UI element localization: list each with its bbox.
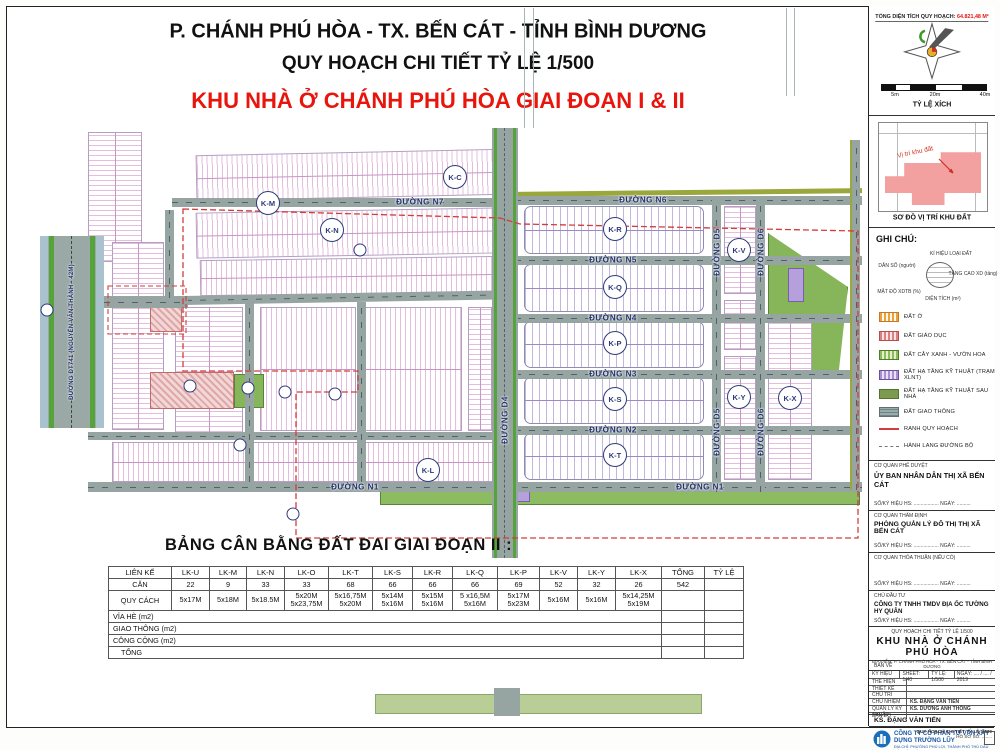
- verify-name: PHÒNG QUẢN LÝ ĐÔ THỊ THỊ XÃ BẾN CÁT: [874, 521, 995, 535]
- cell: 542: [662, 579, 705, 591]
- scale-tick: 5m: [891, 92, 899, 98]
- sign-line: SỐ/KÝ HIỆU HS: .................. NGÀY: …: [874, 501, 971, 507]
- block-label-k-s: K-S: [603, 387, 627, 411]
- credit-value: KS. ĐẶNG VĂN TIẾN: [907, 699, 959, 705]
- road-east-edge: [850, 140, 860, 490]
- legend-item: ĐẤT GIÁO DỤC: [879, 331, 947, 341]
- row-label: QUY CÁCH: [109, 591, 172, 611]
- cell: 5x17M: [172, 591, 210, 611]
- credit-row: QUẢN LÝ KỸ THUẬT KS. DƯƠNG ANH THÔNG: [869, 706, 995, 713]
- tech-infra-swatch: [879, 370, 899, 380]
- col-header: LK-M: [210, 567, 247, 579]
- street-label-n1: ĐƯỜNG N1: [331, 483, 379, 492]
- compass-section: TỔNG DIỆN TÍCH QUY HOẠCH: 64.821,48 M² 5…: [869, 6, 995, 116]
- block-dot: [242, 382, 255, 395]
- cell: [662, 634, 705, 646]
- investor-label: CHỦ ĐẦU TƯ: [874, 593, 905, 599]
- sheet-footer: QUY HOẠCH CHI TIẾT TỶ LỆ 1/500 HỒ SƠ SỐ:…: [600, 729, 992, 747]
- cell: 68: [329, 579, 373, 591]
- cell: [705, 579, 744, 591]
- lot-block: [260, 307, 356, 431]
- credit-label: KÝ HIỆU: [869, 671, 900, 678]
- road-green-stripe: [49, 236, 54, 428]
- cell: 5x16,75M 5x20M: [329, 591, 373, 611]
- investor-box: CHỦ ĐẦU TƯ CÔNG TY TNHH TMDV ĐỊA ỐC TƯỜN…: [869, 591, 995, 627]
- cell: 26: [616, 579, 662, 591]
- cell: 5x15M 5x16M: [413, 591, 453, 611]
- cell: [662, 591, 705, 611]
- engineer-name: KS. ĐẶNG VĂN TIẾN: [874, 717, 941, 724]
- traffic-swatch: [879, 407, 899, 417]
- total-area-label: TỔNG DIỆN TÍCH QUY HOẠCH:: [875, 14, 955, 20]
- plan-sheet: P. CHÁNH PHÚ HÒA - TX. BẾN CÁT - TỈNH BÌ…: [0, 0, 1000, 750]
- agree-label: CƠ QUAN THỎA THUẬN (NẾU CÓ): [874, 555, 955, 561]
- balance-table-title: BẢNG CÂN BẰNG ĐẤT ĐAI GIAI ĐOẠN II :: [165, 536, 512, 555]
- street-label-n3: ĐƯỜNG N3: [589, 370, 637, 379]
- lot-block: [196, 207, 505, 258]
- street-label-n4: ĐƯỜNG N4: [589, 314, 637, 323]
- cell: 32: [578, 579, 616, 591]
- cell: [662, 610, 705, 622]
- corridor-swatch: [879, 446, 899, 447]
- legend-item-label: RANH QUY HOẠCH: [904, 426, 958, 432]
- legend-item-label: ĐẤT GIAO THÔNG: [904, 409, 955, 415]
- footer-line2: HỒ SƠ SỐ: ........: [600, 734, 992, 739]
- table-row-congcong: CÔNG CỘNG (m2): [109, 634, 744, 646]
- credit-row: CHỦ NHIỆM KS. ĐẶNG VĂN TIẾN: [869, 699, 995, 706]
- project-type: QUY HOẠCH CHI TIẾT TỶ LỆ 1/500: [869, 629, 995, 635]
- block-label-k-v: K-V: [727, 238, 751, 262]
- legend-item-label: ĐẤT HẠ TẦNG KỸ THUẬT (TRẠM XLNT): [904, 369, 995, 381]
- block-label-k-y: K-Y: [727, 385, 751, 409]
- map-street-line: [879, 133, 987, 134]
- col-header: LK-V: [540, 567, 578, 579]
- table-header-row: LIÊN KẾ LK-U LK-M LK-N LK-O LK-T LK-S LK…: [109, 567, 744, 579]
- credit-label: THIẾT KẾ: [869, 686, 907, 692]
- site-arrow-icon: [937, 157, 959, 179]
- cell: [705, 610, 744, 622]
- total-area-value: 64.821,48 M²: [957, 14, 989, 20]
- block-dot: [234, 439, 247, 452]
- row-label: CĂN: [109, 579, 172, 591]
- col-header: LK-P: [498, 567, 540, 579]
- road-alley: [165, 210, 174, 298]
- street-label-d4: ĐƯỜNG D4: [501, 396, 510, 444]
- credit-value: TỶ LỆ: 1/500: [929, 671, 955, 678]
- col-header: TỶ LỆ: [705, 567, 744, 579]
- block-label-k-p: K-P: [603, 331, 627, 355]
- sign-line: SỐ/KÝ HIỆU HS: .................. NGÀY: …: [874, 618, 971, 624]
- legend-item-label: ĐẤT CÂY XANH - VƯỜN HOA: [904, 352, 986, 358]
- credit-row: KÝ HIỆU SHEET: 1/40 TỶ LỆ: 1/500 NGÀY: .…: [869, 671, 995, 679]
- scale-tick: 20m: [930, 92, 941, 98]
- project-name-box: QUY HOẠCH CHI TIẾT TỶ LỆ 1/500 KHU NHÀ Ở…: [869, 627, 995, 661]
- street-label-dt741: ĐƯỜNG ĐT741 (NGUYỄN VĂN THÀNH - 42M): [69, 264, 75, 400]
- sign-line: SỐ/KÝ HIỆU HS: .................. NGÀY: …: [874, 543, 971, 549]
- block-dot: [41, 304, 54, 317]
- rear-infra-swatch: [879, 389, 899, 399]
- legend-item-label: ĐẤT GIÁO DỤC: [904, 333, 947, 339]
- road-centerline: [504, 128, 505, 558]
- road-extension-line: [786, 8, 787, 96]
- legend-title: GHI CHÚ:: [876, 234, 917, 244]
- location-map-section: Vị trí khu đất SƠ ĐỒ VỊ TRÍ KHU ĐẤT: [869, 116, 995, 228]
- drawing-label: BẢN VẼ: [874, 663, 892, 669]
- block-label-k-q: K-Q: [603, 275, 627, 299]
- cell: 52: [540, 579, 578, 591]
- col-header: LK-Q: [453, 567, 498, 579]
- credit-label: CHỦ TRÌ: [869, 692, 907, 698]
- row-label: VỈA HÈ (m2): [109, 610, 662, 622]
- street-label-d6: ĐƯỜNG D6: [757, 228, 766, 276]
- title-line1: P. CHÁNH PHÚ HÒA - TX. BẾN CÁT - TỈNH BÌ…: [170, 21, 707, 44]
- street-label-n6: ĐƯỜNG N6: [619, 196, 667, 205]
- credit-value: SHEET: 1/40: [900, 671, 929, 678]
- legend-item: RANH QUY HOẠCH: [879, 426, 958, 432]
- cell: [705, 591, 744, 611]
- cell: 5x16M: [540, 591, 578, 611]
- block-label-k-m: K-M: [256, 191, 280, 215]
- cell: 22: [172, 579, 210, 591]
- legend-item: ĐẤT HẠ TẦNG KỸ THUẬT (TRẠM XLNT): [879, 369, 995, 381]
- street-label-n7: ĐƯỜNG N7: [396, 198, 444, 207]
- col-header: LK-X: [616, 567, 662, 579]
- boundary-swatch: [879, 428, 899, 430]
- legend-item: ĐẤT Ở: [879, 312, 922, 322]
- road-n6: [515, 196, 862, 205]
- balance-table: LIÊN KẾ LK-U LK-M LK-N LK-O LK-T LK-S LK…: [108, 566, 744, 659]
- site-label: Vị trí khu đất: [897, 145, 934, 159]
- drawing-label-box: BẢN VẼ: [869, 661, 995, 671]
- location-map-caption: SƠ ĐỒ VỊ TRÍ KHU ĐẤT: [893, 215, 971, 222]
- street-label-n2: ĐƯỜNG N2: [589, 426, 637, 435]
- block-dot: [279, 386, 292, 399]
- road-green-stripe: [513, 128, 516, 558]
- col-header: LIÊN KẾ: [109, 567, 172, 579]
- road-n2: [515, 426, 862, 435]
- col-header: LK-T: [329, 567, 373, 579]
- road-n4: [515, 314, 862, 323]
- sign-line: SỐ/KÝ HIỆU HS: .................. NGÀY: …: [874, 581, 971, 587]
- cell: [705, 634, 744, 646]
- investor-name: CÔNG TY TNHH TMDV ĐỊA ỐC TƯỜNG HY QUÂN: [874, 601, 995, 615]
- scale-tick: 40m: [980, 92, 991, 98]
- block-label-k-c: K-C: [443, 165, 467, 189]
- cell: 33: [247, 579, 285, 591]
- street-label-d6: ĐƯỜNG D6: [757, 408, 766, 456]
- road-d4: [492, 128, 518, 558]
- approve-name: ỦY BAN NHÂN DÂN THỊ XÃ BẾN CÁT: [874, 471, 995, 489]
- map-street-line: [897, 123, 898, 211]
- road-green-stripe: [90, 236, 95, 428]
- block-dot: [184, 380, 197, 393]
- credit-value: KS. DƯƠNG ANH THÔNG: [907, 706, 971, 712]
- key-label-left: DÂN SỐ (người): [878, 263, 915, 269]
- agree-box: CƠ QUAN THỎA THUẬN (NẾU CÓ) SỐ/KÝ HIỆU H…: [869, 553, 995, 591]
- side-panel: TỔNG DIỆN TÍCH QUY HOẠCH: 64.821,48 M² 5…: [868, 6, 995, 726]
- location-map: Vị trí khu đất: [878, 122, 988, 212]
- project-name: KHU NHÀ Ở CHÁNH PHÚ HÒA: [869, 636, 995, 658]
- legend-item-label: HÀNH LANG ĐƯỜNG BỘ: [904, 443, 973, 449]
- legend-item: ĐẤT HẠ TẦNG KỸ THUẬT SAU NHÀ: [879, 388, 995, 400]
- cell: 5x18M: [210, 591, 247, 611]
- block-label-k-t: K-T: [603, 443, 627, 467]
- col-header: LK-Y: [578, 567, 616, 579]
- block-label-k-r: K-R: [603, 217, 627, 241]
- block-label-k-l: K-L: [416, 458, 440, 482]
- table-row-viahe: VỈA HÈ (m2): [109, 610, 744, 622]
- road-n7: [172, 198, 502, 207]
- block-label-k-x: K-X: [778, 386, 802, 410]
- road-extension-line: [794, 8, 795, 96]
- lot-block: [175, 307, 243, 433]
- road-extension-line: [524, 8, 525, 128]
- key-label-bottom-left: MẬT ĐỘ XDTB (%): [877, 289, 920, 295]
- road-n3: [515, 370, 862, 379]
- road-shoulder: [96, 236, 104, 428]
- cell: 66: [413, 579, 453, 591]
- road-green-stripe: [494, 128, 497, 558]
- cell: [662, 622, 705, 634]
- cell: 66: [453, 579, 498, 591]
- road-n1: [88, 482, 862, 492]
- table-row-quycach: QUY CÁCH 5x17M 5x18M 5x18.5M 5x20M 5x23,…: [109, 591, 744, 611]
- cell: 5x16M: [578, 591, 616, 611]
- verify-label: CƠ QUAN THẨM ĐỊNH: [874, 513, 927, 519]
- credit-label: THỂ HIỆN: [869, 679, 907, 685]
- cell: [662, 646, 705, 658]
- approve-label: CƠ QUAN PHÊ DUYỆT: [874, 463, 928, 469]
- cell: 5x14M 5x16M: [373, 591, 413, 611]
- cell: 9: [210, 579, 247, 591]
- road-alley: [357, 302, 366, 482]
- verify-box: CƠ QUAN THẨM ĐỊNH PHÒNG QUẢN LÝ ĐÔ THỊ T…: [869, 511, 995, 553]
- residential-swatch: [879, 312, 899, 322]
- block-dot: [354, 244, 367, 257]
- road-n5: [515, 256, 862, 265]
- row-label: CÔNG CỘNG (m2): [109, 634, 662, 646]
- cell: 5x17M 5x23M: [498, 591, 540, 611]
- col-header: LK-R: [413, 567, 453, 579]
- key-label-bottom: DIỆN TÍCH (m²): [925, 296, 960, 302]
- block-dot: [329, 388, 342, 401]
- credits-grid: KÝ HIỆU SHEET: 1/40 TỶ LỆ: 1/500 NGÀY: .…: [869, 671, 995, 715]
- credit-label: CHỦ NHIỆM: [869, 699, 907, 705]
- legend-item: HÀNH LANG ĐƯỜNG BỘ: [879, 443, 973, 449]
- legend-item-label: ĐẤT HẠ TẦNG KỸ THUẬT SAU NHÀ: [904, 388, 995, 400]
- legend-item: ĐẤT GIAO THÔNG: [879, 407, 955, 417]
- lot-block: [200, 256, 502, 296]
- cell: 33: [285, 579, 329, 591]
- table-row-giaothong: GIAO THÔNG (m2): [109, 622, 744, 634]
- col-header: LK-N: [247, 567, 285, 579]
- road-phase1-south: [88, 432, 504, 440]
- footer-box: [984, 731, 995, 745]
- table-row-tong: TỔNG: [109, 646, 744, 658]
- cell: 5x14,25M 5x19M: [616, 591, 662, 611]
- title-line3: KHU NHÀ Ở CHÁNH PHÚ HÒA GIAI ĐOẠN I & II: [191, 88, 684, 114]
- road-stub-bottom: [494, 688, 520, 716]
- legend-item: ĐẤT CÂY XANH - VƯỜN HOA: [879, 350, 986, 360]
- road-junction: [104, 296, 188, 308]
- lot-block: [468, 307, 492, 431]
- col-header: LK-U: [172, 567, 210, 579]
- greenery-swatch: [879, 350, 899, 360]
- scale-bar: [881, 84, 987, 91]
- block-dot: [287, 508, 300, 521]
- scale-caption: TỶ LỆ XÍCH: [913, 102, 952, 109]
- street-label-d5: ĐƯỜNG D5: [713, 228, 722, 276]
- row-label: GIAO THÔNG (m2): [109, 622, 662, 634]
- cell: 66: [373, 579, 413, 591]
- col-header: LK-S: [373, 567, 413, 579]
- key-label-right: TẦNG CAO XD (tầng): [949, 271, 998, 277]
- cell: [705, 622, 744, 634]
- compass-icon: [901, 22, 963, 80]
- cell: [705, 646, 744, 658]
- title-line2: QUY HOẠCH CHI TIẾT TỶ LỆ 1/500: [282, 53, 594, 75]
- education-swatch: [879, 331, 899, 341]
- legend-section: GHI CHÚ: KÍ HIỆU LOẠI ĐẤT DÂN SỐ (người)…: [869, 228, 995, 461]
- table-row-can: CĂN 22 9 33 33 68 66 66 66 69 52 32 26 5…: [109, 579, 744, 591]
- road-shoulder: [40, 236, 48, 428]
- block-label-k-n: K-N: [320, 218, 344, 242]
- tech-station-rect: [788, 268, 804, 302]
- street-label-n5: ĐƯỜNG N5: [589, 256, 637, 265]
- approve-box: CƠ QUAN PHÊ DUYỆT ỦY BAN NHÂN DÂN THỊ XÃ…: [869, 461, 995, 511]
- cell: 5 x16,5M 5x16M: [453, 591, 498, 611]
- street-label-d5: ĐƯỜNG D5: [713, 408, 722, 456]
- col-header: TỔNG: [662, 567, 705, 579]
- engineer-box: KS. ĐẶNG VĂN TIẾN: [869, 715, 995, 727]
- street-label-n1: ĐƯỜNG N1: [676, 483, 724, 492]
- cell: 5x18.5M: [247, 591, 285, 611]
- col-header: LK-O: [285, 567, 329, 579]
- green-strip-bottom: [375, 694, 702, 714]
- lot-block: [364, 307, 462, 431]
- row-label: TỔNG: [109, 646, 662, 658]
- lot-block: [724, 300, 756, 350]
- cell: 5x20M 5x23,75M: [285, 591, 329, 611]
- legend-item-label: ĐẤT Ở: [904, 314, 922, 320]
- road-extension-line: [533, 8, 534, 128]
- cell: 69: [498, 579, 540, 591]
- credit-label: QUẢN LÝ KỸ THUẬT: [869, 706, 907, 712]
- credit-value: NGÀY: .... / .... / 2019: [955, 671, 995, 678]
- key-label-top: KÍ HIỆU LOẠI ĐẤT: [930, 251, 972, 257]
